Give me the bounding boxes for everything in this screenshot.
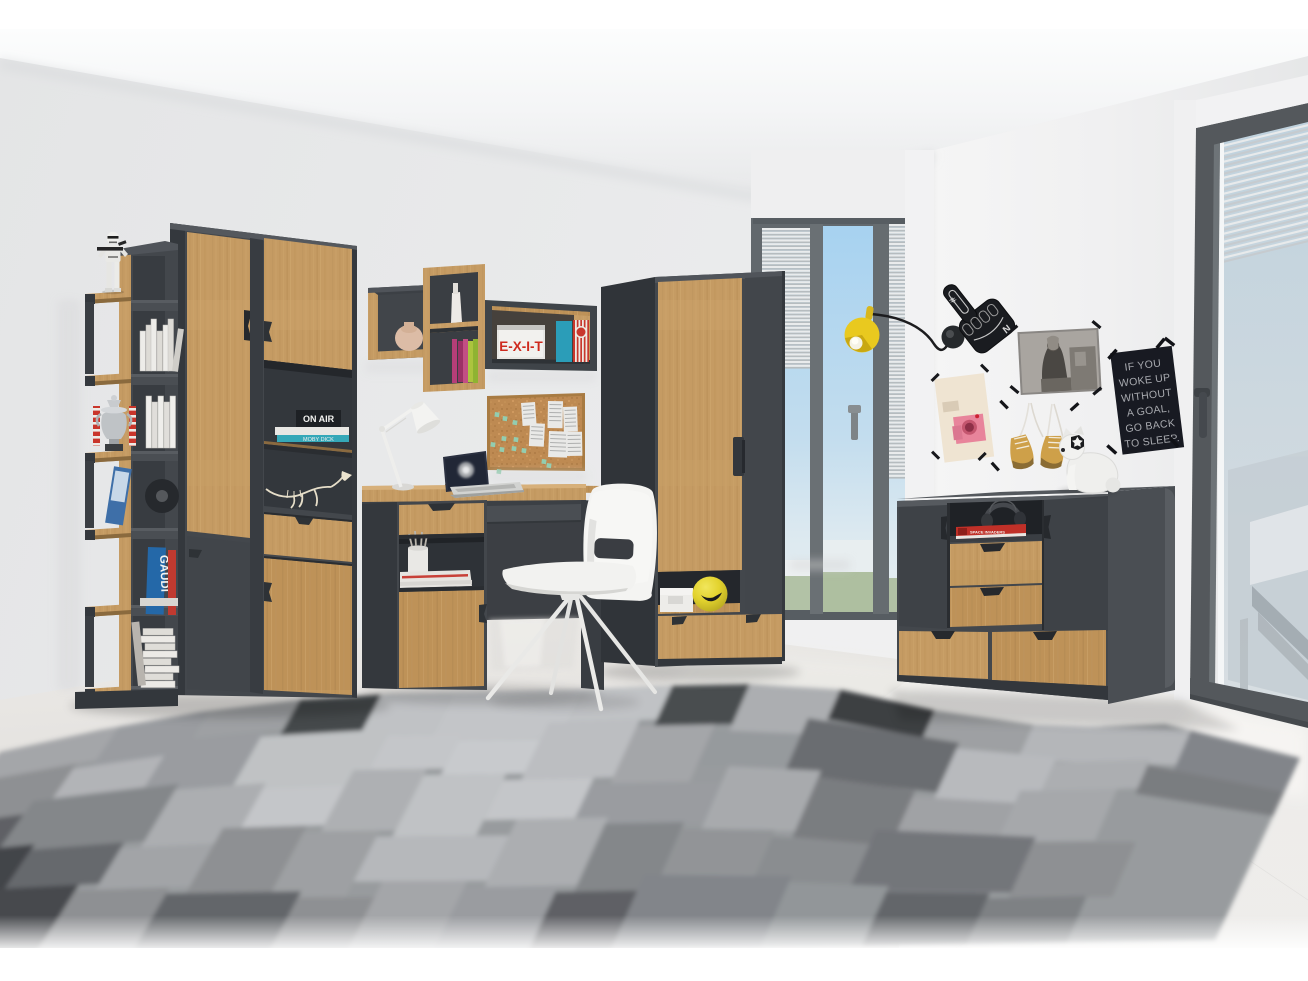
svg-text:MOBY DICK: MOBY DICK — [303, 437, 334, 443]
svg-text:SPACE INVADERS: SPACE INVADERS — [970, 530, 1005, 535]
svg-text:ON AIR: ON AIR — [303, 414, 335, 424]
svg-text:E-X-I-T: E-X-I-T — [499, 339, 543, 354]
